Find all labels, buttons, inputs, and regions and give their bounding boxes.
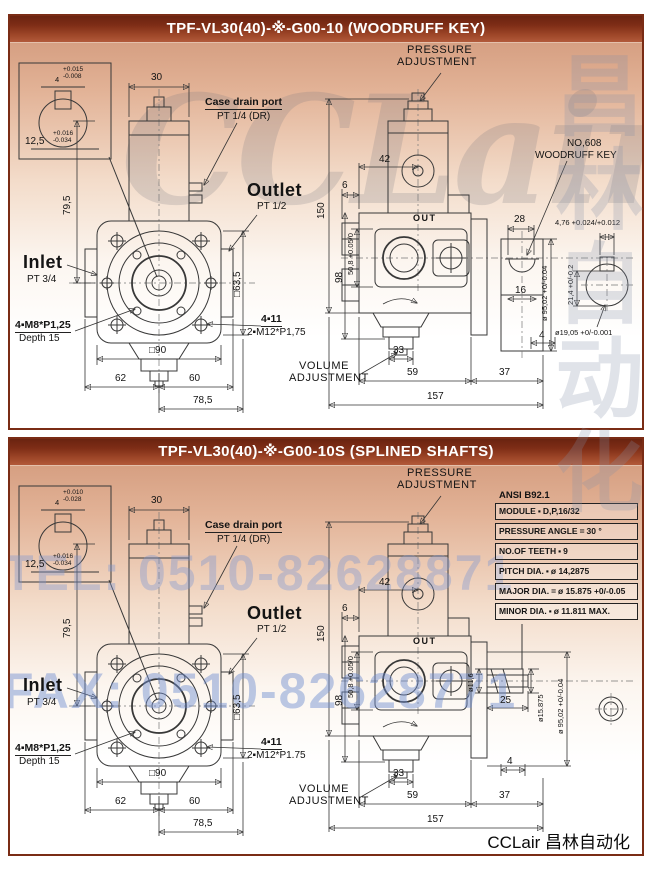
dim-label: □63,5 <box>233 694 244 720</box>
spline-table-title: ANSI B92.1 <box>499 490 638 501</box>
dim-label: 6 <box>342 604 348 615</box>
dim-label: 2▪M12*P1.75 <box>247 751 306 762</box>
dim-label: 50,8 +0.05/0 <box>347 656 355 698</box>
spline-table-row: PITCH DIA.▪ø 14,2875 <box>495 563 638 580</box>
spline-table-rows: MODULE▪D,P,16/32PRESSURE ANGLE=30 °NO.OF… <box>495 503 638 620</box>
dim-label: 33 <box>393 769 404 780</box>
dim-label: PT 1/2 <box>257 625 286 636</box>
dim-label: 4 <box>507 757 513 768</box>
dim-label: 62 <box>115 797 126 808</box>
dim-label: +0.016 -0.034 <box>53 554 73 567</box>
spline-table-row: PRESSURE ANGLE=30 ° <box>495 523 638 540</box>
dim-label: 50,8 +0.05/0 <box>347 233 355 275</box>
dim-label: 60 <box>189 797 200 808</box>
dim-label: □90 <box>149 346 166 357</box>
dim-label: 79,5 <box>63 196 74 215</box>
dim-label: 25 <box>500 696 511 707</box>
dim-label: 157 <box>427 392 444 403</box>
dim-label: □90 <box>149 769 166 780</box>
dim-label: ø19,05 +0/-0.001 <box>555 329 612 337</box>
dim-label: 37 <box>499 791 510 802</box>
dim-label: 4 <box>55 499 59 507</box>
spline-table-row: MINOR DIA.▪ø 11.811 MAX. <box>495 603 638 620</box>
dim-label: 2▪M12*P1,75 <box>247 328 306 339</box>
dim-label: ø 95,02 +0/-0.04 <box>541 266 549 321</box>
dim-label: 33 <box>393 346 404 357</box>
dim-label: 37 <box>499 368 510 379</box>
dim-label: 12,5 <box>25 560 44 571</box>
outlet-label: Outlet <box>247 181 302 200</box>
dim-label: ø11,6 <box>467 673 475 692</box>
dim-label: 21,4 +0/-0.2 <box>567 265 575 305</box>
dim-label: ø15.875 <box>537 694 545 722</box>
splined-shafts-panel: TPF-VL30(40)-※-G00-10S (SPLINED SHAFTS) … <box>8 437 644 856</box>
dim-label: PT 1/4 (DR) <box>217 112 270 123</box>
inlet-label: Inlet <box>23 676 63 695</box>
dim-label: Depth 15 <box>19 334 60 345</box>
dim-label: PT 3/4 <box>27 275 56 286</box>
dim-label: 30 <box>151 73 162 84</box>
dim-label: 59 <box>407 791 418 802</box>
dim-label: +0.016 -0.034 <box>53 131 73 144</box>
dim-label: 59 <box>407 368 418 379</box>
brand-footer: CCLair 昌林自动化 <box>487 828 630 853</box>
dim-label: 98 <box>335 695 346 706</box>
dim-label: ADJUSTMENT <box>397 480 477 492</box>
dim-label: 4▪11 <box>261 314 282 327</box>
dim-label: □63,5 <box>233 271 244 297</box>
dim-label: PT 1/2 <box>257 202 286 213</box>
case-drain-port-label: Case drain port <box>205 520 282 533</box>
dim-label: 12,5 <box>25 137 44 148</box>
dim-label: 42 <box>379 155 390 166</box>
dim-label: 4▪11 <box>261 737 282 750</box>
dim-label: 16 <box>515 286 526 297</box>
dim-label: 78,5 <box>193 819 212 830</box>
dim-label: 42 <box>379 578 390 589</box>
dim-label: 28 <box>514 215 525 226</box>
dim-label: 4,76 +0.024/+0.012 <box>555 219 620 227</box>
dim-label: +0.015 -0.008 <box>63 67 83 80</box>
dim-label: 157 <box>427 815 444 826</box>
spline-spec-table: ANSI B92.1 MODULE▪D,P,16/32PRESSURE ANGL… <box>495 490 638 623</box>
dim-label: OUT <box>413 637 437 647</box>
panel-title: TPF-VL30(40)-※-G00-10 (WOODRUFF KEY) <box>10 16 642 43</box>
outlet-label: Outlet <box>247 604 302 623</box>
dim-label: PT 3/4 <box>27 698 56 709</box>
inlet-label: Inlet <box>23 253 63 272</box>
dim-label: 150 <box>317 202 328 219</box>
dim-label: 4▪M8*P1,25 <box>15 743 71 756</box>
spline-table-row: MAJOR DIA.=ø 15.875 +0/-0.05 <box>495 583 638 600</box>
dim-label: 78,5 <box>193 396 212 407</box>
dim-label: NO,608 <box>567 139 601 150</box>
dim-label: +0.010 -0.028 <box>63 490 83 503</box>
dimension-labels-layer: 304+0.015 -0.00812,5+0.016 -0.034Case dr… <box>11 43 641 429</box>
dim-label: 150 <box>317 625 328 642</box>
dim-label: 30 <box>151 496 162 507</box>
dim-label: 4 <box>539 331 545 342</box>
dim-label: ø 95,02 +0/-0.04 <box>557 679 565 734</box>
dim-label: 79,5 <box>63 619 74 638</box>
spline-table-row: MODULE▪D,P,16/32 <box>495 503 638 520</box>
dim-label: 4▪M8*P1,25 <box>15 320 71 333</box>
panel-title: TPF-VL30(40)-※-G00-10S (SPLINED SHAFTS) <box>10 439 642 466</box>
woodruff-key-panel: TPF-VL30(40)-※-G00-10 (WOODRUFF KEY) CCL… <box>8 14 644 430</box>
dim-label: PT 1/4 (DR) <box>217 535 270 546</box>
dim-label: 6 <box>342 181 348 192</box>
dim-label: 4 <box>55 76 59 84</box>
dim-label: ADJUSTMENT <box>289 373 369 385</box>
spline-table-row: NO.OF TEETH▪9 <box>495 543 638 560</box>
dim-label: WOODRUFF KEY <box>535 151 617 162</box>
dim-label: ADJUSTMENT <box>289 796 369 808</box>
case-drain-port-label: Case drain port <box>205 97 282 110</box>
dim-label: 60 <box>189 374 200 385</box>
dim-label: OUT <box>413 214 437 224</box>
dim-label: 98 <box>335 272 346 283</box>
dim-label: Depth 15 <box>19 757 60 768</box>
dim-label: 62 <box>115 374 126 385</box>
dim-label: ADJUSTMENT <box>397 57 477 69</box>
